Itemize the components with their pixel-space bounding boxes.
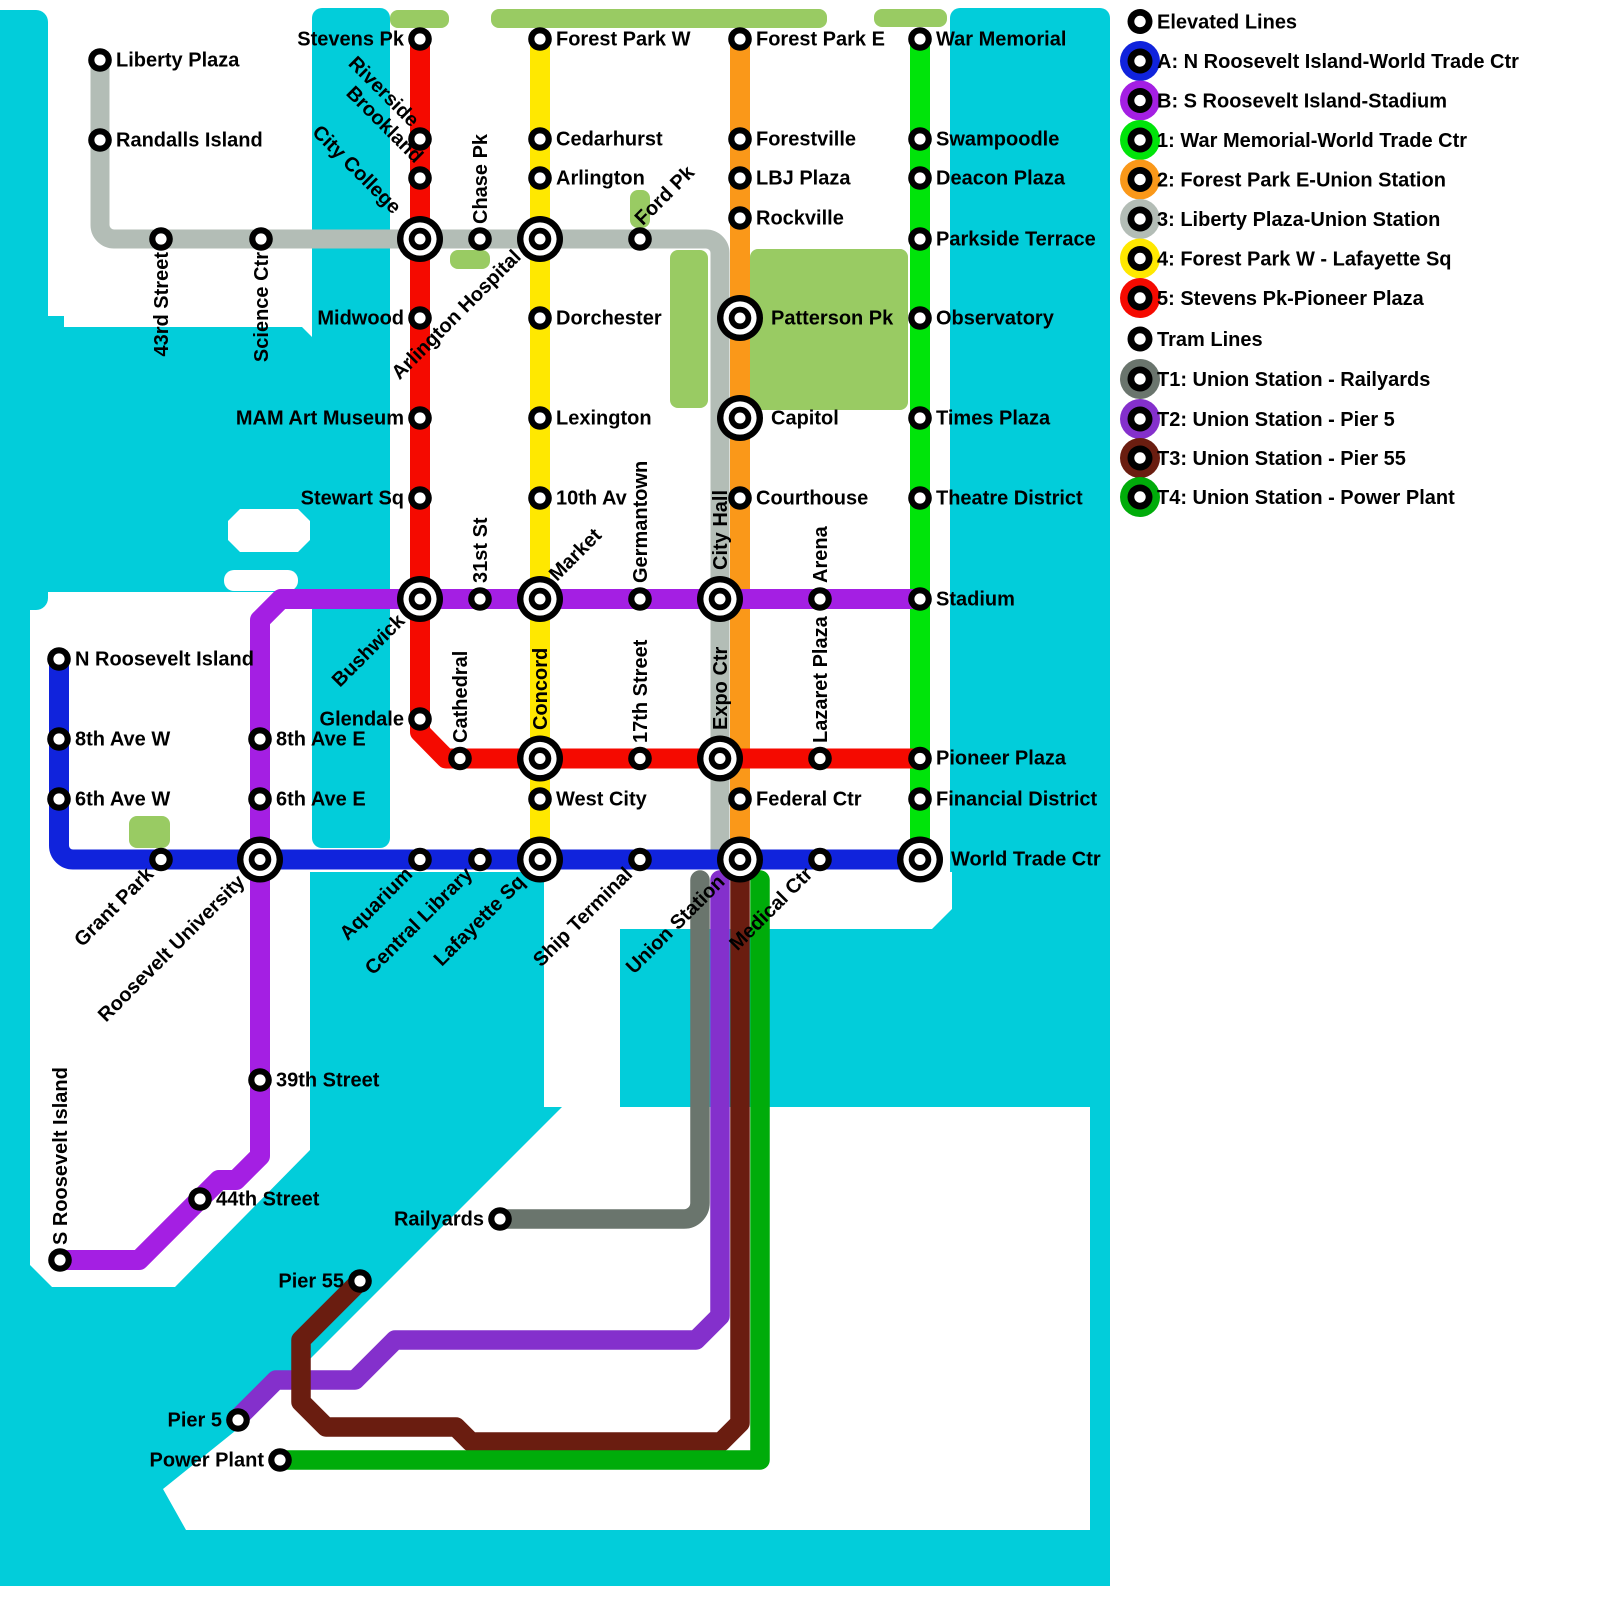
svg-text:Observatory: Observatory bbox=[936, 308, 1055, 330]
svg-text:Pier 55: Pier 55 bbox=[278, 1271, 344, 1293]
svg-text:2: Forest Park E-Union Station: 2: Forest Park E-Union Station bbox=[1157, 170, 1446, 192]
svg-text:War Memorial: War Memorial bbox=[936, 29, 1066, 51]
svg-text:B: S Roosevelt Island-Stadium: B: S Roosevelt Island-Stadium bbox=[1157, 91, 1447, 113]
svg-text:Forest Park E: Forest Park E bbox=[756, 29, 885, 51]
svg-text:MAM Art Museum: MAM Art Museum bbox=[236, 408, 404, 430]
svg-text:8th Ave E: 8th Ave E bbox=[276, 729, 366, 751]
svg-text:Germantown: Germantown bbox=[630, 461, 652, 583]
svg-text:West City: West City bbox=[556, 789, 648, 811]
svg-text:Science Ctr: Science Ctr bbox=[251, 252, 273, 362]
svg-text:Cathedral: Cathedral bbox=[450, 651, 472, 743]
svg-text:World Trade Ctr: World Trade Ctr bbox=[951, 849, 1101, 871]
svg-text:N Roosevelt Island: N Roosevelt Island bbox=[75, 649, 254, 671]
svg-text:Stewart Sq: Stewart Sq bbox=[301, 488, 404, 510]
svg-text:6th Ave W: 6th Ave W bbox=[75, 789, 170, 811]
svg-text:3: Liberty Plaza-Union Station: 3: Liberty Plaza-Union Station bbox=[1157, 209, 1440, 231]
svg-text:Glendale: Glendale bbox=[320, 709, 404, 731]
svg-text:T3: Union Station - Pier 55: T3: Union Station - Pier 55 bbox=[1157, 448, 1406, 470]
svg-text:Financial District: Financial District bbox=[936, 789, 1097, 811]
svg-text:Swampoodle: Swampoodle bbox=[936, 129, 1059, 151]
svg-text:Lazaret Plaza: Lazaret Plaza bbox=[810, 615, 832, 743]
svg-text:Patterson Pk: Patterson Pk bbox=[771, 308, 894, 330]
svg-text:Expo Ctr: Expo Ctr bbox=[710, 646, 732, 730]
svg-text:Courthouse: Courthouse bbox=[756, 488, 868, 510]
svg-text:Dorchester: Dorchester bbox=[556, 308, 662, 330]
svg-text:39th Street: 39th Street bbox=[276, 1070, 380, 1092]
svg-text:A: N Roosevelt Island-World Tr: A: N Roosevelt Island-World Trade Ctr bbox=[1157, 51, 1519, 73]
svg-text:31st St: 31st St bbox=[470, 517, 492, 583]
svg-text:Cedarhurst: Cedarhurst bbox=[556, 129, 663, 151]
svg-text:43rd Street: 43rd Street bbox=[151, 252, 173, 357]
svg-text:Pier 5: Pier 5 bbox=[168, 1410, 222, 1432]
svg-text:Railyards: Railyards bbox=[394, 1209, 484, 1231]
svg-text:Elevated Lines: Elevated Lines bbox=[1157, 12, 1297, 34]
svg-text:4: Forest Park W - Lafayette S: 4: Forest Park W - Lafayette Sq bbox=[1157, 249, 1452, 271]
svg-text:6th Ave E: 6th Ave E bbox=[276, 789, 366, 811]
svg-text:S Roosevelt Island: S Roosevelt Island bbox=[50, 1067, 72, 1245]
svg-text:Concord: Concord bbox=[530, 648, 552, 730]
svg-text:10th Av: 10th Av bbox=[556, 488, 628, 510]
svg-text:44th Street: 44th Street bbox=[216, 1189, 320, 1211]
svg-text:T4: Union Station - Power Plan: T4: Union Station - Power Plant bbox=[1157, 487, 1455, 509]
svg-text:Forestville: Forestville bbox=[756, 129, 856, 151]
svg-text:Times Plaza: Times Plaza bbox=[936, 408, 1051, 430]
svg-text:Chase Pk: Chase Pk bbox=[470, 133, 492, 224]
svg-text:Theatre District: Theatre District bbox=[936, 488, 1083, 510]
svg-text:Tram Lines: Tram Lines bbox=[1157, 329, 1263, 351]
svg-text:Power Plant: Power Plant bbox=[150, 1450, 265, 1472]
svg-text:Lexington: Lexington bbox=[556, 408, 652, 430]
svg-text:T1: Union Station - Railyards: T1: Union Station - Railyards bbox=[1157, 369, 1430, 391]
svg-text:Forest Park W: Forest Park W bbox=[556, 29, 691, 51]
svg-text:Arlington: Arlington bbox=[556, 168, 645, 190]
svg-text:T2: Union Station - Pier 5: T2: Union Station - Pier 5 bbox=[1157, 409, 1395, 431]
svg-text:Liberty Plaza: Liberty Plaza bbox=[116, 50, 240, 72]
svg-text:17th Street: 17th Street bbox=[630, 639, 652, 743]
svg-text:Pioneer Plaza: Pioneer Plaza bbox=[936, 748, 1067, 770]
svg-text:City Hall: City Hall bbox=[710, 490, 732, 570]
svg-text:5: Stevens Pk-Pioneer Plaza: 5: Stevens Pk-Pioneer Plaza bbox=[1157, 288, 1425, 310]
svg-text:Randalls Island: Randalls Island bbox=[116, 130, 263, 152]
svg-text:8th Ave W: 8th Ave W bbox=[75, 729, 170, 751]
svg-text:Federal Ctr: Federal Ctr bbox=[756, 789, 862, 811]
svg-text:Midwood: Midwood bbox=[317, 308, 404, 330]
svg-text:Capitol: Capitol bbox=[771, 408, 839, 430]
svg-text:Parkside Terrace: Parkside Terrace bbox=[936, 229, 1096, 251]
svg-text:1: War Memorial-World Trade Ct: 1: War Memorial-World Trade Ctr bbox=[1157, 130, 1467, 152]
svg-text:Stevens Pk: Stevens Pk bbox=[297, 29, 405, 51]
svg-text:Rockville: Rockville bbox=[756, 208, 844, 230]
svg-text:Stadium: Stadium bbox=[936, 589, 1015, 611]
svg-text:LBJ Plaza: LBJ Plaza bbox=[756, 168, 851, 190]
svg-text:Deacon Plaza: Deacon Plaza bbox=[936, 168, 1066, 190]
svg-text:Arena: Arena bbox=[810, 525, 832, 583]
